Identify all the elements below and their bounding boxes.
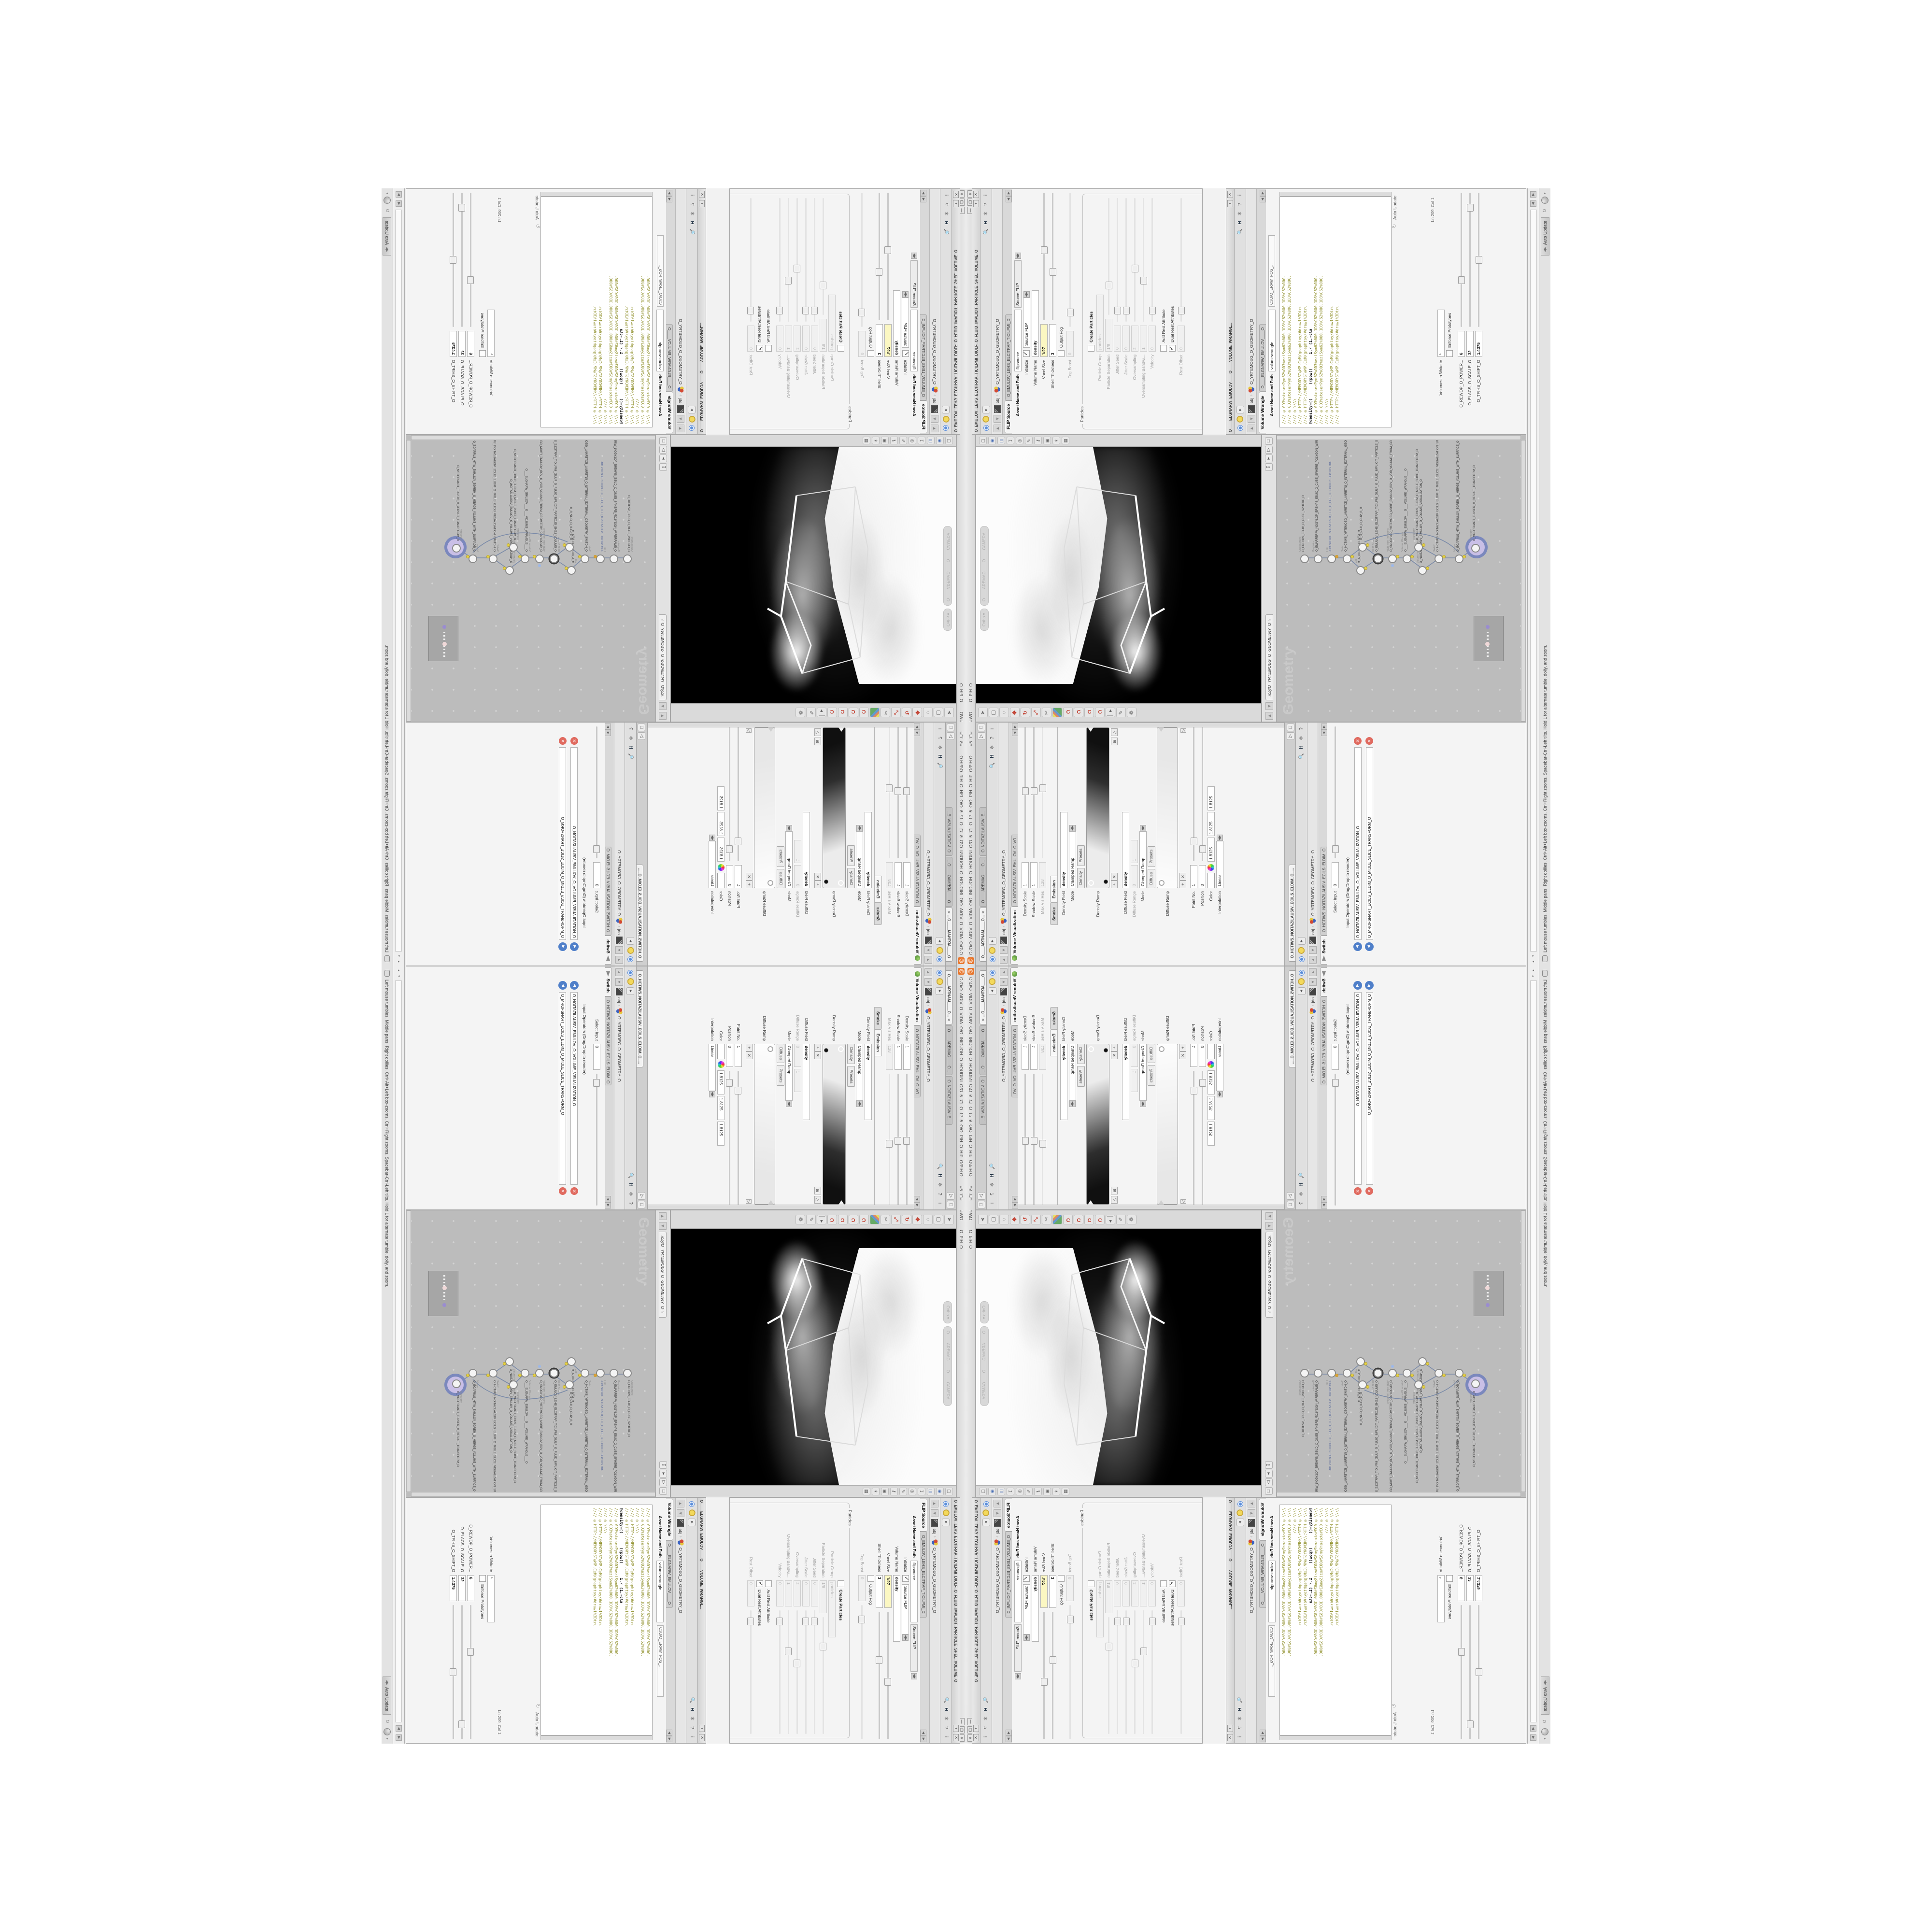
node-volume-wrangle[interactable]: Volume WrangleO___ELGNARW_EMULOV___O___V… [1403, 1369, 1413, 1379]
reorder-icon[interactable]: ◄ [1353, 942, 1362, 951]
velocity-field[interactable]: 0 [1149, 326, 1156, 352]
gear-icon[interactable]: ✻ [1298, 734, 1306, 742]
view-pencil-icon[interactable]: ✎ [1025, 437, 1033, 445]
shell-thickness-field[interactable]: 3 [1049, 324, 1056, 357]
houdini-help-icon[interactable]: H [936, 753, 944, 760]
viewport-render[interactable]: Ortho ▾ O____AREMAC____O____CAMERA_ [976, 447, 1261, 703]
view-light-icon[interactable]: ☀ [1052, 437, 1060, 445]
breadcrumb-root[interactable]: obj [679, 1529, 683, 1534]
oversampling-field[interactable]: 2 [1131, 1580, 1138, 1606]
gear-icon[interactable]: ✻ [989, 1181, 996, 1189]
density-field[interactable]: density [1060, 1044, 1067, 1120]
drag-icon[interactable]: + [699, 1725, 705, 1732]
play-icon[interactable]: ▸ [1298, 987, 1306, 995]
box-select-icon[interactable]: ▢ [934, 708, 943, 718]
pane-maximize-icon[interactable]: □ [1265, 437, 1273, 445]
gear-icon[interactable]: ✻ [1236, 210, 1244, 217]
close-tab-icon[interactable]: ✕ [982, 1018, 985, 1021]
nav-up-icon[interactable]: ▲ [1248, 1500, 1255, 1507]
houdini-help-icon[interactable]: H [1298, 743, 1306, 751]
drag-icon[interactable]: + [1227, 200, 1233, 207]
ramp-tri-icon[interactable]: △ [814, 728, 821, 736]
node-switch-geo[interactable]: SwitchO_HCTIWS_YRTEMOEG_LANRETXE_LANRETN… [1343, 1369, 1353, 1379]
nav-up-icon[interactable]: ▲ [1309, 968, 1317, 976]
scene-viewport[interactable]: ➤ ▢ ◌ ✥ ↻ ⤢ ✂ ✦ C C C C ▏▸ ✎ ❁ [976, 435, 1262, 722]
snap-multi-icon[interactable]: C [827, 1215, 837, 1224]
tab-node-name[interactable]: O_NOITAZILAUSIV_EMULOV_O_VO [1011, 1025, 1018, 1097]
power-slider[interactable] [1461, 193, 1462, 327]
follow-selection-icon[interactable] [989, 955, 996, 963]
viewport-render[interactable]: Ortho ▾ O____AREMAC____O____CAMERA_ [976, 1229, 1261, 1485]
volumes-to-write-field[interactable]: * [488, 1575, 495, 1622]
presets-button[interactable]: Presets [847, 845, 855, 866]
menu-arrows-icon[interactable]: ◀▶ [903, 1634, 909, 1641]
shift-slider[interactable] [453, 1605, 455, 1739]
tab-scroll-right-icon[interactable]: ▶ [666, 1736, 672, 1742]
node-cubesphere[interactable]: CubeSphereO_EREHPS_EBUC_O_CUBE_SPHERE_O [1300, 1369, 1311, 1379]
globe-icon[interactable] [384, 197, 391, 204]
pane-tab-visualization[interactable]: O_NOITAZILAUSIV_E... [946, 1076, 952, 1125]
houdini-help-icon[interactable]: H [989, 753, 996, 760]
pane-tab-mantra[interactable]: O____ARTNAM____O...✕ [980, 908, 986, 962]
density-scale-field[interactable]: 1 [1022, 1044, 1029, 1070]
ramp-next-icon[interactable]: ▷ [746, 728, 752, 733]
ramp-marker-icon[interactable] [1158, 727, 1164, 732]
asset-name-field[interactable]: flipsource [911, 310, 918, 371]
network-editor[interactable]: ▲ ▼ /obj/O_YRTEMOEG_O_GEOMETRY_O ✕ ↧▸▷□ … [406, 1210, 670, 1497]
drag-icon[interactable]: + [973, 1725, 979, 1732]
gear-icon[interactable]: ✻ [982, 1715, 990, 1722]
network-canvas[interactable]: Geometry CubeSphereO_EREHPS_EBU [411, 1210, 655, 1492]
nav-up-icon[interactable]: ▲ [994, 1500, 1001, 1507]
play-icon[interactable]: ▸ [1236, 1519, 1244, 1526]
color-swatch[interactable] [1207, 873, 1215, 888]
delete-input-icon[interactable]: ✕ [1354, 737, 1362, 745]
help-icon[interactable]: ? [936, 734, 944, 742]
tab-switch[interactable]: Switch [605, 936, 612, 965]
pin-icon[interactable] [1236, 415, 1244, 423]
view-cube-icon[interactable]: ◫ [997, 1488, 1005, 1495]
info-icon[interactable]: i [688, 1733, 696, 1741]
globe-icon[interactable] [1541, 197, 1548, 204]
nav-up-icon[interactable]: ▲ [931, 425, 939, 432]
tab-volume-wrangle[interactable]: Volume Wrangle [666, 1499, 673, 1540]
drag-icon[interactable]: + [953, 1725, 959, 1732]
nav-up-icon[interactable]: ▲ [616, 956, 624, 964]
pane-maximize-icon[interactable]: □ [978, 1201, 985, 1208]
folder-tab-smoke[interactable]: Smoke [875, 1007, 882, 1029]
snap-grid-icon[interactable]: C [1063, 1215, 1073, 1224]
pin-icon[interactable] [982, 415, 990, 423]
follow-selection-icon[interactable] [936, 969, 944, 977]
search-icon[interactable]: 🔍 [688, 1696, 696, 1704]
brush-tool-icon[interactable]: ✎ [1116, 708, 1126, 718]
ramp-next-icon[interactable]: ▷ [1180, 728, 1186, 733]
breadcrumb-root[interactable]: obj [617, 997, 622, 1003]
recook-icon[interactable]: ↻ [1391, 1702, 1399, 1710]
net-pin-icon[interactable]: ↧ [660, 463, 668, 471]
globe-icon[interactable] [384, 1728, 391, 1735]
max-vis-res-field[interactable]: 128 [1039, 1044, 1046, 1070]
rest-offset-field[interactable]: 0 [1178, 326, 1185, 352]
reorder-icon[interactable]: ◄ [558, 942, 567, 951]
voxel-size-field[interactable]: 1/27 [1040, 324, 1048, 357]
mode-menu[interactable]: Clamped Ramp [856, 831, 864, 888]
breadcrumb-root[interactable]: obj [1001, 929, 1006, 935]
density-ramp[interactable] [1086, 1044, 1109, 1205]
velocity-field[interactable]: 0 [777, 326, 784, 352]
diffuse-ramp[interactable] [1157, 1044, 1178, 1205]
select-tool-icon[interactable]: ➤ [978, 1215, 988, 1224]
position-slider[interactable] [729, 1071, 731, 1206]
position-field[interactable]: 0 [1199, 865, 1206, 888]
pane-tab-camera[interactable]: O____AREMAC____O... [980, 857, 986, 907]
follow-selection-icon[interactable] [1236, 424, 1244, 432]
power-slider[interactable] [1461, 1605, 1462, 1739]
tab-node-name[interactable]: O_EMULOV_LEHS_ELCITRAP_TICILPMI_DI [1005, 314, 1012, 400]
select-input-field[interactable]: 0 [594, 1044, 601, 1070]
diffuse-range-max[interactable]: 1 [795, 1069, 802, 1092]
snap-prim-icon[interactable]: C [849, 1215, 858, 1224]
view-cube-icon[interactable]: ◫ [927, 1488, 935, 1495]
rotate-tool-icon[interactable]: ↻ [902, 1215, 911, 1224]
ortho-pill[interactable]: Ortho ▾ [980, 609, 989, 631]
recook-icon[interactable]: ↻ [533, 222, 541, 230]
tab-node-name[interactable]: O_EMULOV_LEHS_ELCITRAP_TICILPMI_DI [920, 314, 927, 400]
diffuse-range-min[interactable]: 0 [1131, 1044, 1138, 1067]
nav-down-icon[interactable]: ▼ [925, 978, 933, 986]
scale-slider[interactable] [1469, 1605, 1471, 1739]
delete-input-icon[interactable]: ✕ [1354, 1187, 1362, 1195]
ramp-marker-icon[interactable] [838, 727, 844, 732]
ramp-point-icon[interactable] [1104, 880, 1108, 884]
play-icon[interactable]: ▸ [982, 1519, 990, 1526]
snap-prim-icon[interactable]: C [849, 708, 858, 718]
breadcrumb-root[interactable]: obj [1249, 1529, 1254, 1534]
help-icon[interactable]: ? [936, 1190, 944, 1198]
lasso-select-icon[interactable]: ◌ [923, 1215, 933, 1224]
nav-up-icon[interactable]: ▲ [1248, 425, 1255, 432]
menu-arrows-icon[interactable]: ◀▶ [786, 1101, 793, 1107]
snap-multi-icon[interactable]: C [1095, 1215, 1105, 1224]
tab-switch[interactable]: Switch [605, 967, 612, 996]
output-fog-checkbox[interactable] [867, 1575, 874, 1582]
asset-path-field[interactable]: C:/O/O_ERAWTFOS_... [1268, 1625, 1275, 1697]
particle-group-field[interactable]: particles [829, 1580, 836, 1637]
select-tool-icon[interactable]: ➤ [978, 708, 988, 718]
network-hscrollbar[interactable] [406, 1210, 411, 1492]
view-key-icon[interactable]: ⚷ [1034, 437, 1042, 445]
network-path-tab[interactable]: /obj/O_YRTEMOEG_O_GEOMETRY_O ✕ [659, 1232, 667, 1318]
shell-thickness-field[interactable]: 3 [876, 324, 883, 357]
tab-volume-visualization[interactable]: Volume Visualization [914, 967, 922, 1025]
network-path-tab[interactable]: /obj/O_YRTEMOEG_O_GEOMETRY_O ✕ [1265, 614, 1273, 700]
oversampling-bandwidth-field[interactable]: 1 [785, 326, 793, 352]
play-icon[interactable]: ▸ [982, 406, 990, 413]
pin-icon[interactable] [688, 1509, 696, 1517]
diffuse-range-min[interactable]: 0 [795, 1044, 802, 1067]
scale-tool-icon[interactable]: ⤢ [891, 708, 901, 718]
tab-scroll-left-icon[interactable]: ◀ [1260, 1730, 1266, 1736]
pane-tab-switch[interactable]: O_HCTIWS_NOITAZILAUSIV_ECILS_ELDIM_O_... [637, 865, 643, 962]
oversampling-bandwidth-field[interactable]: 1 [1140, 326, 1147, 352]
search-icon[interactable]: 🔍 [1236, 228, 1244, 236]
recook-icon[interactable]: ↻ [1541, 207, 1549, 214]
snap-multi-icon[interactable]: C [1095, 708, 1105, 718]
network-vscrollbar[interactable] [411, 1492, 655, 1497]
voxel-size-slider[interactable] [888, 193, 889, 320]
menu-arrows-icon[interactable]: ◀▶ [1069, 1101, 1076, 1107]
voxel-size-field[interactable]: 1/27 [885, 324, 892, 357]
ramp-marker-icon[interactable] [768, 727, 774, 732]
node-merge[interactable]: MergeO_ECAFRUS_HTIW_EMULOV_EGREM_O_MERGE… [467, 553, 477, 563]
play-icon[interactable]: ▸ [989, 987, 996, 995]
node-flip-source[interactable]: FLIP SourceO_EMULOV_LEHS_ELCITRAP_TICILP… [1374, 553, 1384, 563]
follow-selection-icon[interactable] [982, 424, 990, 432]
network-editor[interactable]: ▲ ▼ /obj/O_YRTEMOEG_O_GEOMETRY_O ✕ ↧▸▷□ … [406, 435, 670, 722]
scissors-icon[interactable]: ✂ [1042, 708, 1051, 718]
shift-field[interactable]: 1.4375 [1475, 1575, 1482, 1601]
node-volume-wrangle[interactable]: Volume WrangleO___ELGNARW_EMULOV___O___V… [1403, 553, 1413, 563]
close-tab-icon[interactable]: ✕ [947, 911, 950, 914]
tab-scroll-right-icon[interactable]: ▶ [1260, 190, 1266, 196]
play-icon[interactable]: ▸ [1298, 937, 1306, 945]
view-key-icon[interactable]: ⚷ [890, 1488, 898, 1495]
gear-icon[interactable]: ✻ [627, 1190, 635, 1198]
ramp-point-icon[interactable] [767, 1046, 773, 1052]
box-select-icon[interactable]: ▢ [934, 1215, 943, 1224]
input-operator-field[interactable]: O_MROFSNART_ECILS_ELDIM_O_MIDLE_SLICE_TR… [559, 747, 567, 940]
ramp-kind-menu[interactable]: Density [847, 1044, 855, 1064]
node-polywire[interactable]: PolyWireO_EMARFERIW_NOGYLOP_EREHPS_EBUC_… [608, 553, 618, 563]
menu-arrows-icon[interactable]: ◀▶ [710, 835, 716, 841]
nav-down-icon[interactable]: ▼ [925, 946, 933, 954]
initialize-checkbox[interactable] [1023, 1575, 1030, 1582]
create-particles-checkbox[interactable] [838, 345, 844, 352]
voxel-size-field[interactable]: 1/27 [1040, 1575, 1048, 1608]
tab-scroll-left-icon[interactable]: ◀ [1006, 1730, 1012, 1736]
jitter-scale-field[interactable]: 0 [1122, 326, 1130, 352]
node-switch-visualization[interactable]: SwitchO_HCTIWS_NOITAZILAUSIV_ECILS_ELDIM… [487, 1369, 497, 1379]
node-vdb-from-polygons[interactable]: VDB from PolygonsO_SNOGYLOP_YRTEMOEG_MOR… [1388, 1369, 1399, 1379]
position-slider[interactable] [1202, 1071, 1203, 1206]
pin-icon[interactable] [1298, 946, 1306, 954]
ramp-marker-icon[interactable] [1088, 1200, 1094, 1205]
shell-thickness-field[interactable]: 3 [876, 1575, 883, 1608]
menu-arrows-icon[interactable]: ◀▶ [1023, 1634, 1030, 1641]
output-fog-checkbox[interactable] [1058, 350, 1065, 357]
presets-button[interactable]: Presets [1077, 1066, 1085, 1087]
node-volume-wrangle[interactable]: Volume WrangleO___ELGNARW_EMULOV___O___V… [519, 553, 529, 563]
brush-tool-icon[interactable]: ✎ [806, 708, 816, 718]
pane-menu-icon[interactable]: ▷ [660, 446, 668, 454]
volumes-to-write-field[interactable]: * [1437, 1575, 1445, 1622]
volume-name-field[interactable]: density [894, 290, 901, 357]
folder-tab-smoke[interactable]: Smoke [1050, 903, 1057, 925]
frame-fwd-icon[interactable]: ▶ [396, 191, 402, 198]
asset-name-field[interactable]: volumewrangle [1268, 310, 1276, 371]
view-pin-icon[interactable]: ↧ [1007, 437, 1014, 445]
node-vdb-from-polygons[interactable]: VDB from PolygonsO_SNOGYLOP_YRTEMOEG_MOR… [533, 1369, 544, 1379]
net-play-icon[interactable]: ▸ [1265, 455, 1273, 462]
scale-slider[interactable] [462, 193, 463, 327]
orbit-tool-icon[interactable]: ❁ [1127, 1215, 1136, 1224]
node-file[interactable]: FileJBO.SD3.PETS.TRPDLS.B_ELIF_O_FILE_B.… [594, 1369, 605, 1379]
tab-scroll-right-icon[interactable]: ▶ [914, 1202, 920, 1208]
layout-single-icon[interactable]: ▢ [945, 437, 953, 445]
snap-point-icon[interactable]: C [1084, 708, 1094, 718]
pane-maximize-icon[interactable]: □ [947, 724, 954, 731]
search-icon[interactable]: 🔍 [989, 1163, 996, 1170]
presets-button[interactable]: Presets [1077, 845, 1085, 866]
box-select-icon[interactable]: ▢ [989, 708, 998, 718]
fog-boost-field[interactable]: 0 [1066, 331, 1074, 357]
breadcrumb-node[interactable]: O_YRTEMOEG_O_GEOMETRY_O [1310, 1016, 1315, 1082]
diffuse-range-max[interactable]: 1 [1131, 840, 1138, 863]
viewport-render[interactable]: Ortho ▾ O____AREMAC____O____CAMERA_ [671, 1229, 956, 1485]
input-operator-field[interactable]: O_NOITAZILAUSIV_EMULOV_O_VOLUME_VISUALIZ… [571, 992, 578, 1185]
pane-maximize-icon[interactable]: □ [947, 1201, 954, 1208]
jitter-scale-field[interactable]: 0 [803, 326, 810, 352]
tab-scroll-right-icon[interactable]: ▶ [920, 1736, 926, 1742]
delete-input-icon[interactable]: ✕ [1365, 737, 1373, 745]
menu-arrows-icon[interactable]: ◀▶ [857, 1101, 863, 1107]
output-fog-checkbox[interactable] [1058, 1575, 1065, 1582]
select-input-slider[interactable] [1335, 726, 1336, 858]
diffuse-field[interactable]: density [803, 812, 810, 888]
brush-tool-icon[interactable]: ✎ [806, 1215, 816, 1224]
view-camera-icon[interactable]: ▣ [881, 1488, 889, 1495]
houdini-help-icon[interactable]: H [942, 219, 950, 227]
scene-viewport[interactable]: ➤ ▢ ◌ ✥ ↻ ⤢ ✂ ✦ C C C C ▏▸ ✎ ❁ [670, 1210, 956, 1497]
node-volume-wrangle[interactable]: Volume WrangleO___ELGNARW_EMULOV___O___V… [519, 1369, 529, 1379]
position-slider[interactable] [729, 726, 731, 861]
breadcrumb-node[interactable]: O_YRTEMOEG_O_GEOMETRY_O [617, 850, 622, 916]
node-volume-visualization[interactable]: Volume VisualizationO_NOITAZILAUSIV_EMUL… [1418, 564, 1429, 575]
density-scale-slider[interactable] [907, 726, 908, 858]
diffuse-field[interactable]: density [1122, 1044, 1129, 1120]
help-icon[interactable]: ? [942, 200, 950, 208]
particle-separation-field[interactable]: 1/9 [820, 319, 827, 352]
follow-selection-icon[interactable] [942, 1500, 950, 1508]
tab-scroll-right-icon[interactable]: ▶ [1006, 1736, 1012, 1742]
node-polywire[interactable]: PolyWireO_EMARFERIW_NOGYLOP_EREHPS_EBUC_… [1314, 553, 1324, 563]
camera-pill[interactable]: O____AREMAC____O____CAMERA_ [943, 1326, 952, 1406]
breadcrumb-root[interactable]: obj [1249, 398, 1254, 403]
net-pin-icon[interactable]: ↧ [660, 1461, 668, 1469]
view-camera-icon[interactable]: ▣ [881, 437, 889, 445]
breadcrumb-node[interactable]: O_YRTEMOEG_O_GEOMETRY_O [1249, 1548, 1254, 1613]
add-rest-checkbox[interactable] [1160, 345, 1167, 352]
frame-fwd-icon[interactable]: ▶ [1530, 191, 1536, 198]
pane-menu-icon[interactable]: ▷ [638, 1192, 645, 1200]
splitter-up-icon[interactable]: ▲ [398, 969, 400, 972]
initialize-menu[interactable]: Source FLIP [902, 1584, 909, 1634]
handles-tool-icon[interactable]: ✦ [1052, 1215, 1062, 1224]
node-result-transform[interactable]: TransformO_MROFSNART_TLUSER_O_RESULT_TRA… [450, 542, 461, 553]
tab-node-name[interactable]: O_HCTIWS_NOITAZILAUSIV_ECILS_ELDIM_O_ [605, 847, 611, 936]
ramp-add-icon[interactable]: + [746, 1044, 753, 1051]
scale-tool-icon[interactable]: ⤢ [1031, 708, 1041, 718]
jitter-seed-field[interactable]: 0 [1114, 326, 1121, 352]
play-icon[interactable]: ▸ [989, 937, 996, 945]
initialize-menu[interactable]: Source FLIP [902, 298, 909, 348]
ramp-marker-icon[interactable] [1088, 727, 1094, 732]
shadow-scale-slider[interactable] [1033, 1074, 1035, 1206]
voxel-size-slider[interactable] [888, 1612, 889, 1739]
density-scale-slider[interactable] [1024, 726, 1026, 858]
gear-icon[interactable]: ✻ [688, 210, 696, 217]
node-vdb-from-polygons[interactable]: VDB from PolygonsO_SNOGYLOP_YRTEMOEG_MOR… [1388, 553, 1399, 563]
volumes-to-write-field[interactable]: * [488, 310, 495, 357]
breadcrumb-root[interactable]: obj [933, 398, 938, 403]
nav-up-icon[interactable]: ▲ [1000, 956, 1008, 964]
close-tab-icon[interactable]: ✕ [982, 911, 985, 914]
ramp-kind-menu[interactable]: Density [1077, 1044, 1085, 1064]
tab-scroll-left-icon[interactable]: ◀ [605, 1196, 611, 1202]
asset-path-field[interactable]: C:/O/O_ERAWTFOS_... [657, 1625, 664, 1697]
net-pin-icon[interactable]: ↧ [1265, 463, 1273, 471]
gear-icon[interactable]: ✻ [688, 1715, 696, 1722]
folder-tab-emission[interactable]: Emission [1050, 876, 1057, 903]
select-input-field[interactable]: 0 [1332, 1044, 1339, 1070]
view-sphere-icon[interactable]: ◉ [936, 437, 944, 445]
pin-icon[interactable] [627, 946, 635, 954]
network-hscrollbar[interactable] [1521, 1210, 1526, 1492]
close-icon[interactable]: ✕ [953, 1734, 959, 1741]
folder-tab-smoke[interactable]: Smoke [1050, 1007, 1057, 1029]
reorder-icon[interactable]: ◄ [1365, 981, 1374, 990]
tab-scroll-left-icon[interactable]: ◀ [605, 730, 611, 736]
pin-icon[interactable] [982, 1509, 990, 1517]
splitter-up-icon[interactable]: ▲ [398, 960, 400, 963]
network-minimap[interactable] [428, 616, 458, 661]
shadow-scale-slider[interactable] [898, 726, 899, 858]
tab-scroll-left-icon[interactable]: ◀ [920, 196, 926, 202]
node-merge[interactable]: MergeO_ECAFRUS_HTIW_EMULOV_EGREM_O_MERGE… [1455, 553, 1465, 563]
interpolation-menu[interactable]: Linear [1216, 1044, 1223, 1091]
breadcrumb-node[interactable]: O_YRTEMOEG_O_GEOMETRY_O [933, 1548, 938, 1613]
view-grid-icon[interactable]: ▦ [1062, 437, 1069, 445]
pane-menu-icon[interactable]: ▷ [660, 1478, 668, 1486]
node-flip-source[interactable]: FLIP SourceO_EMULOV_LEHS_ELCITRAP_TICILP… [548, 553, 558, 563]
shadow-scale-slider[interactable] [1033, 726, 1035, 858]
houdini-help-icon[interactable]: H [989, 1172, 996, 1179]
snap-prim-icon[interactable]: C [1074, 1215, 1083, 1224]
power-field[interactable]: 6 [468, 1575, 475, 1601]
close-icon[interactable]: ✕ [973, 1734, 979, 1741]
point-no-field[interactable]: 1 [1190, 1044, 1197, 1067]
ramp-next-icon[interactable]: ▷ [1180, 1199, 1186, 1204]
info-icon[interactable]: i [942, 191, 950, 199]
nav-down-icon[interactable]: ▼ [994, 1509, 1001, 1517]
ramp-marker-icon[interactable] [1158, 1200, 1164, 1205]
pane-maximize-icon[interactable]: □ [638, 724, 645, 731]
close-icon[interactable]: ✕ [699, 191, 705, 198]
info-icon[interactable]: i [942, 1733, 950, 1741]
pane-menu-icon[interactable]: ▷ [947, 732, 954, 740]
nav-down-icon[interactable]: ▼ [1248, 1509, 1255, 1517]
code-vscrollbar[interactable] [1279, 192, 1392, 197]
close-icon[interactable]: ✕ [699, 1734, 705, 1741]
snap-prim-icon[interactable]: C [1074, 708, 1083, 718]
volviz-scrollbar[interactable] [648, 723, 914, 727]
rotate-tool-icon[interactable]: ↻ [902, 708, 911, 718]
ramp-tri-icon[interactable]: △ [1111, 1196, 1118, 1204]
volumes-to-write-field[interactable]: * [1437, 310, 1445, 357]
tab-scroll-left-icon[interactable]: ◀ [666, 1730, 672, 1736]
snap-grid-icon[interactable]: C [859, 1215, 869, 1224]
